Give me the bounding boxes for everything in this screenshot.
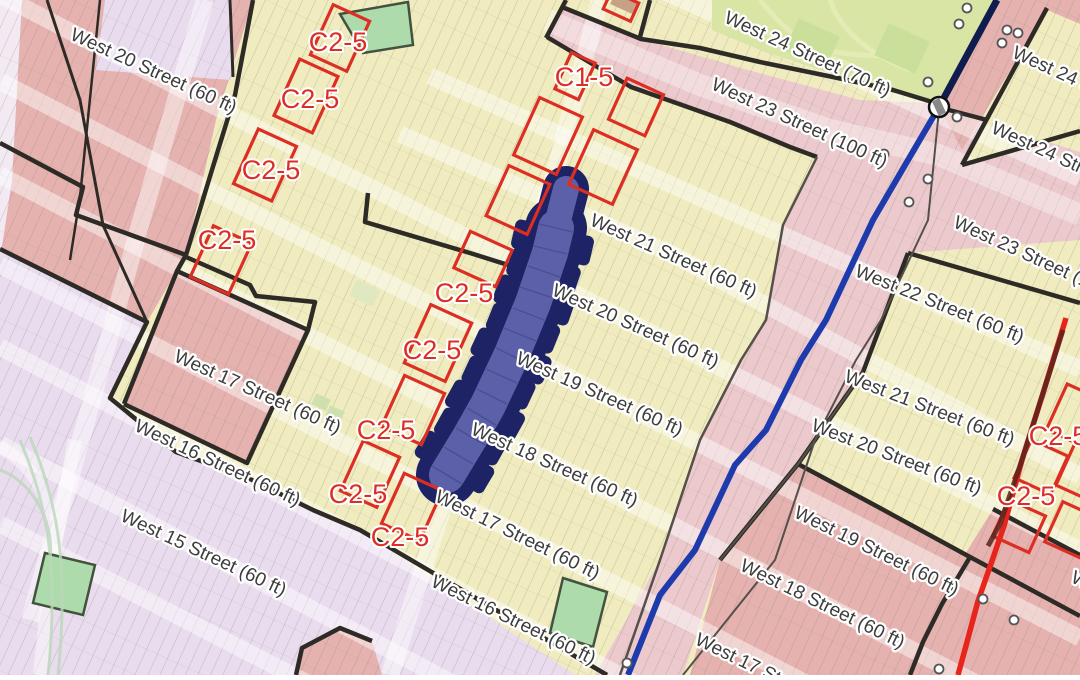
svg-text:C2-5: C2-5 <box>1029 421 1080 451</box>
svg-text:C2-5: C2-5 <box>403 335 462 365</box>
svg-text:C2-5: C2-5 <box>242 155 301 185</box>
svg-text:C2-5: C2-5 <box>329 479 388 509</box>
svg-text:C2-5: C2-5 <box>309 27 368 57</box>
svg-text:C1-5: C1-5 <box>555 62 614 92</box>
svg-text:C2-5: C2-5 <box>281 84 340 114</box>
svg-text:C2-5: C2-5 <box>357 415 416 445</box>
svg-text:C2-5: C2-5 <box>997 481 1056 511</box>
svg-text:C2-5: C2-5 <box>198 225 257 255</box>
svg-text:C2-5: C2-5 <box>435 278 494 308</box>
svg-text:C2-5: C2-5 <box>371 522 430 552</box>
